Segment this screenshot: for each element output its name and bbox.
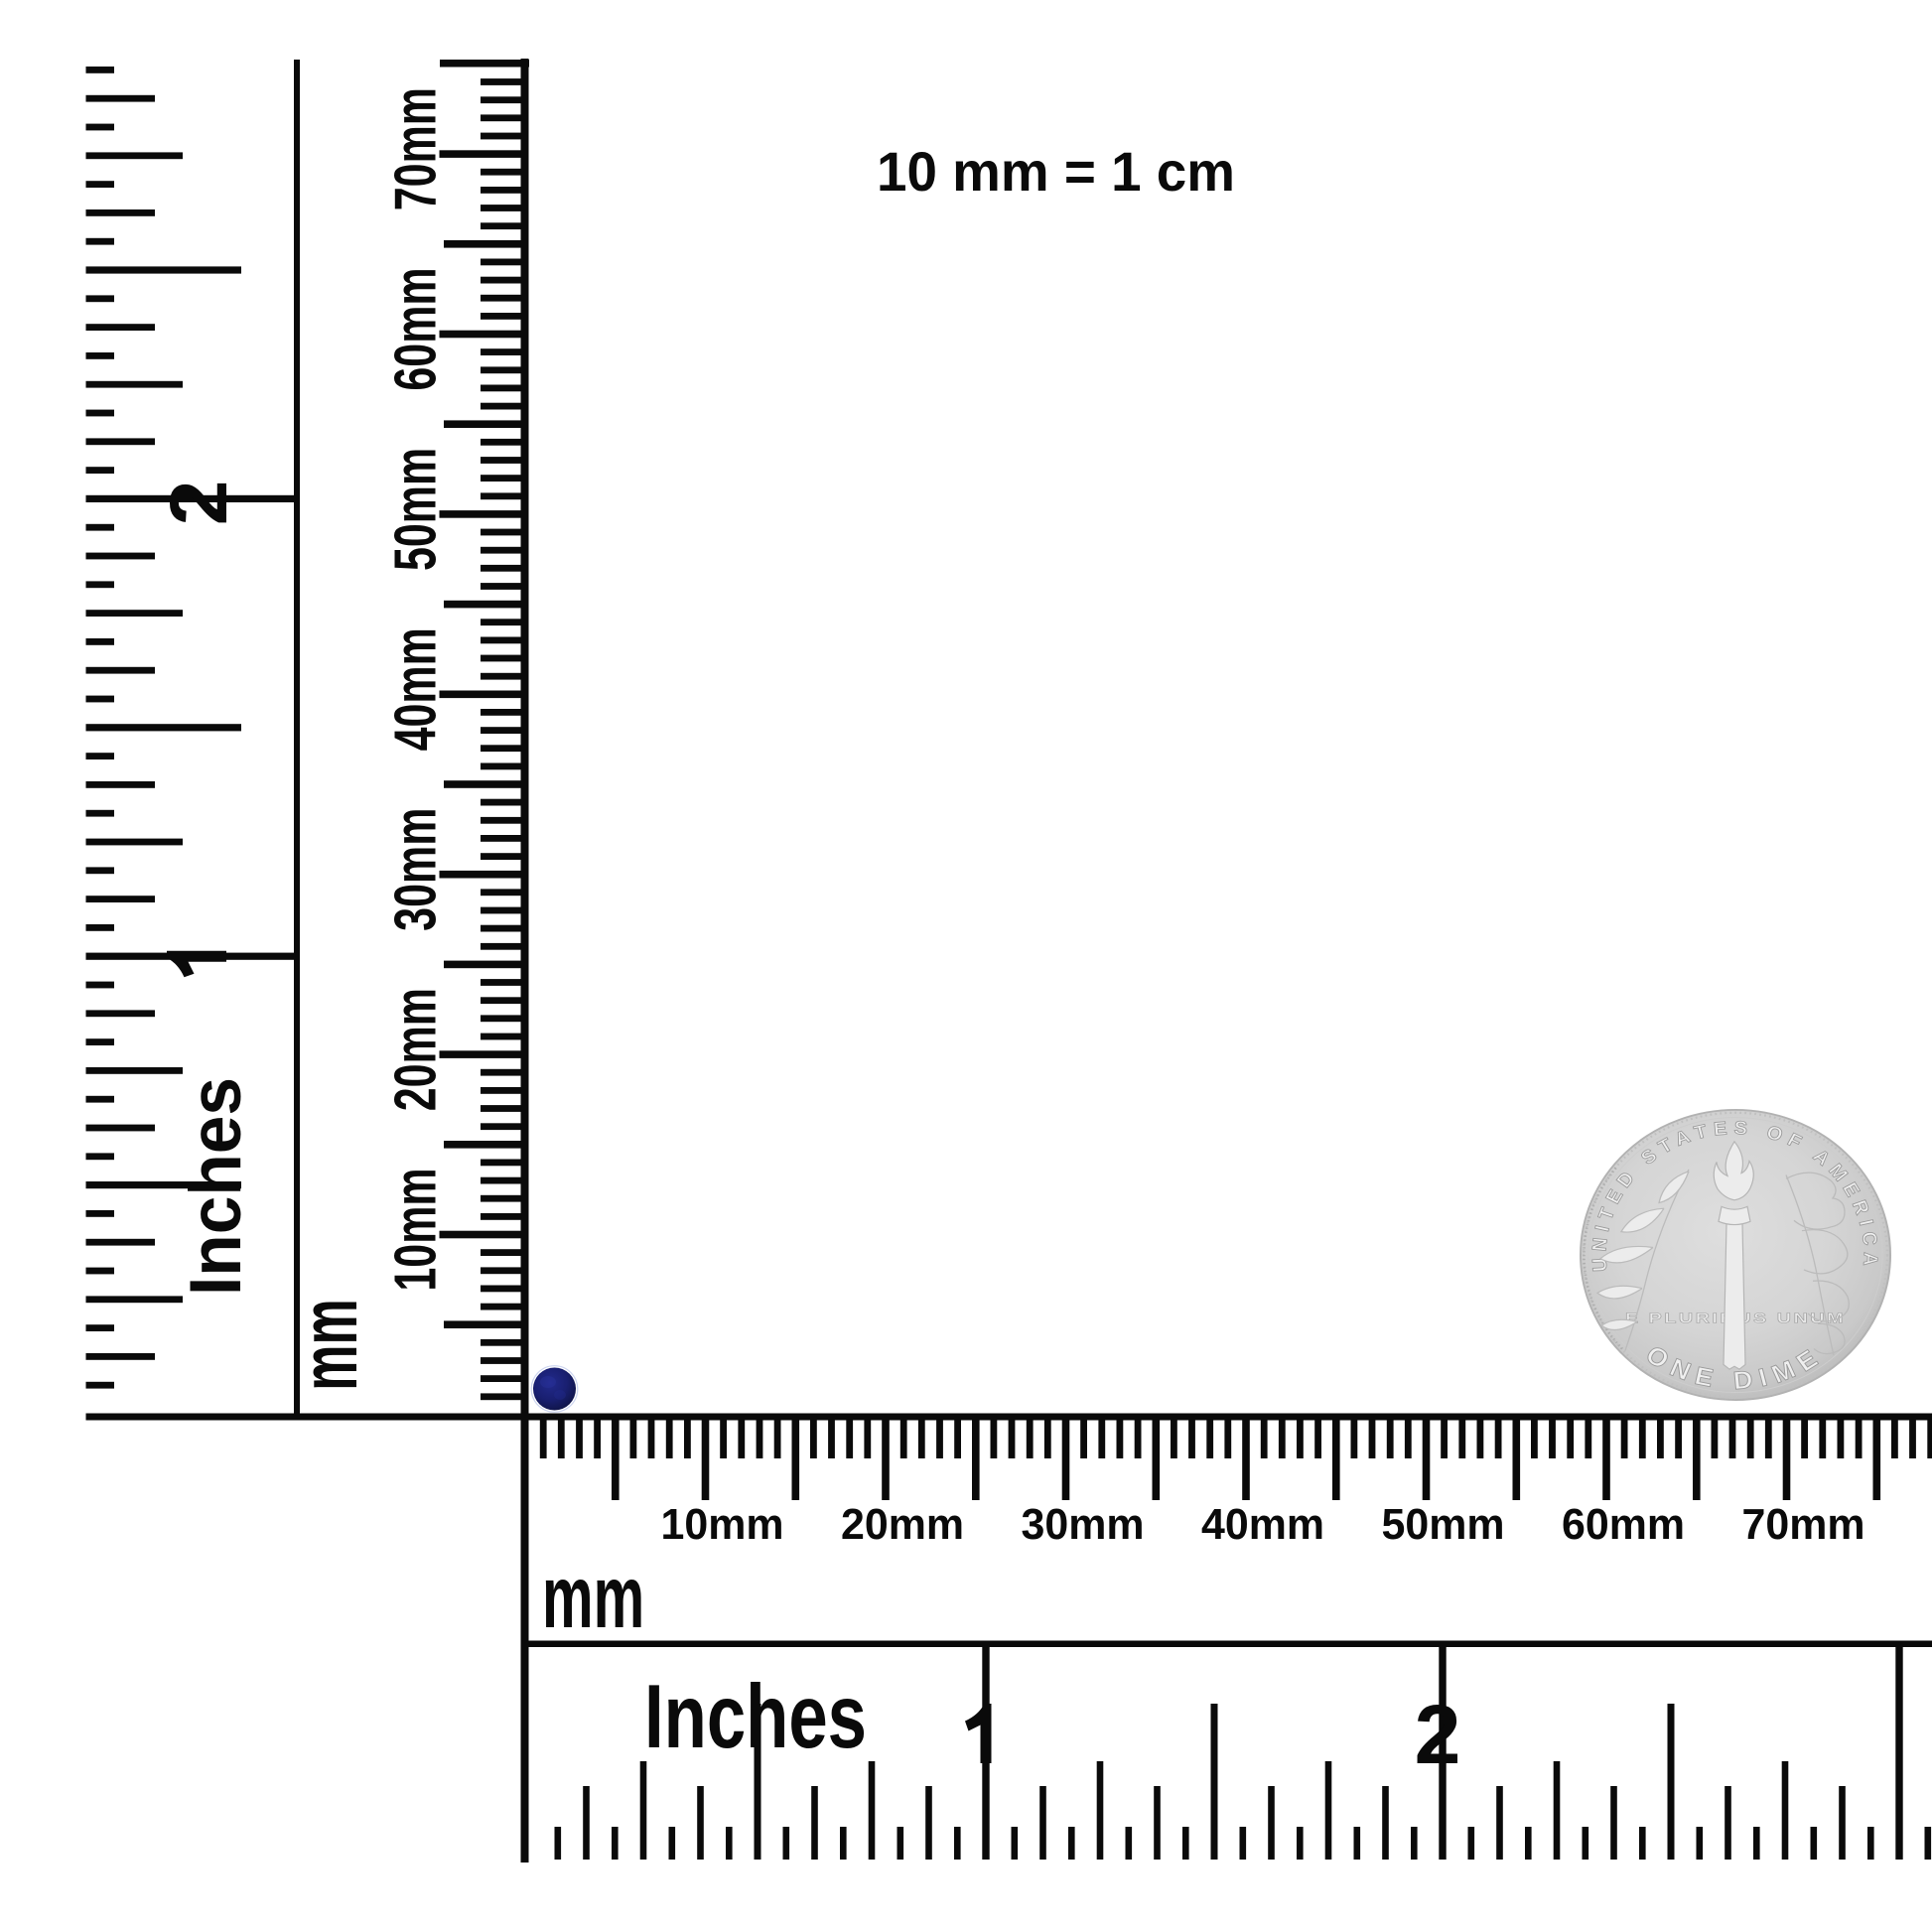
svg-text:70mm: 70mm [1742, 1500, 1865, 1549]
svg-text:Inches: Inches [176, 1077, 256, 1296]
svg-text:mm: mm [286, 1299, 374, 1390]
svg-text:60mm: 60mm [1562, 1500, 1685, 1549]
svg-text:2: 2 [1415, 1688, 1461, 1781]
svg-text:30mm: 30mm [382, 808, 448, 931]
svg-text:40mm: 40mm [382, 627, 448, 751]
svg-text:20mm: 20mm [382, 988, 448, 1111]
svg-text:10mm: 10mm [382, 1168, 448, 1291]
svg-text:10 mm = 1 cm: 10 mm = 1 cm [877, 140, 1235, 203]
svg-text:2: 2 [154, 481, 244, 526]
svg-text:60mm: 60mm [382, 267, 448, 390]
svg-text:10mm: 10mm [661, 1500, 784, 1549]
svg-text:20mm: 20mm [841, 1500, 964, 1549]
svg-text:mm: mm [542, 1547, 644, 1646]
svg-text:30mm: 30mm [1022, 1500, 1145, 1549]
svg-text:50mm: 50mm [382, 448, 448, 571]
svg-text:40mm: 40mm [1201, 1500, 1324, 1549]
svg-text:70mm: 70mm [382, 87, 448, 210]
svg-text:50mm: 50mm [1382, 1500, 1505, 1549]
svg-text:Inches: Inches [644, 1667, 867, 1768]
